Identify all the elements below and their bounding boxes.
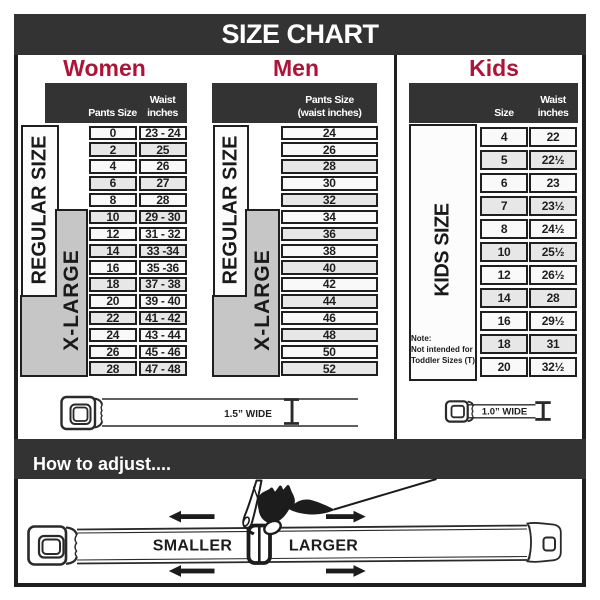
svg-text:SMALLER: SMALLER <box>153 538 233 555</box>
svg-text:LARGER: LARGER <box>289 538 358 555</box>
